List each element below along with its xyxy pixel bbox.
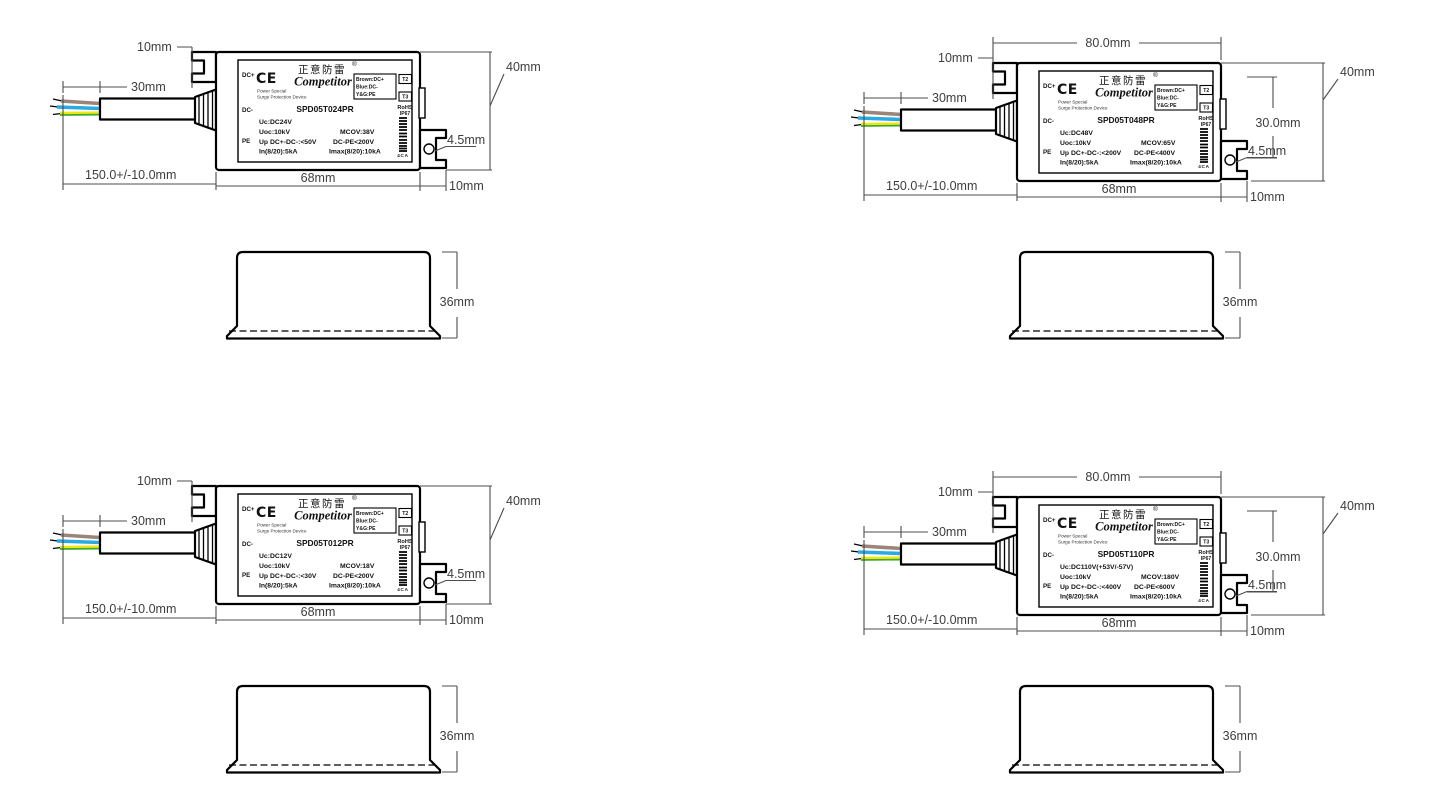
mounting-hole bbox=[424, 578, 434, 588]
legend-blue: Blue:DC- bbox=[1157, 96, 1179, 102]
svg-text:T2: T2 bbox=[1203, 522, 1209, 528]
dim-cable-length-label: 150.0+/-10.0mm bbox=[85, 168, 176, 182]
ip-rating: IP67 bbox=[400, 111, 411, 117]
wire-strands bbox=[851, 110, 901, 126]
t3-badge: T3 bbox=[399, 92, 412, 101]
dim-side-height: 36mm bbox=[1223, 686, 1258, 772]
spec-uc: Uc:DC24V bbox=[259, 119, 292, 126]
side-view-body bbox=[227, 252, 440, 339]
legend-brown: Brown:DC+ bbox=[356, 511, 384, 517]
dim-tab-width-label: 10mm bbox=[938, 485, 973, 499]
datasheet-dimension-drawings: DC+ DC- PE CE 正意防雷 ® Competitor Power Sp… bbox=[0, 0, 1450, 800]
front-view: DC+ DC- PE CE 正意防雷 ® Competitor Power Sp… bbox=[50, 486, 446, 604]
unit-spd05t012pr: DC+ DC- PE CE 正意防雷 ® Competitor Power Sp… bbox=[0, 400, 725, 800]
svg-text:T3: T3 bbox=[402, 529, 408, 535]
spec-up: Up DC+-DC-:<50V bbox=[259, 139, 317, 146]
dim-body-width: 68mm 10mm bbox=[1017, 615, 1285, 638]
legend-blue: Blue:DC- bbox=[356, 85, 378, 91]
dim-strip-length-label: 30mm bbox=[932, 91, 967, 105]
dim-body-width: 68mm 10mm bbox=[216, 170, 484, 193]
dim-overall-height-label: 40mm bbox=[1340, 65, 1375, 79]
spec-uc: Uc:DC12V bbox=[259, 553, 292, 560]
dim-hole-pitch-label: 30.0mm bbox=[1255, 116, 1300, 130]
registered-mark-icon: ® bbox=[1153, 505, 1158, 513]
terminal-pe: PE bbox=[1043, 149, 1051, 156]
spec-mcov: MCOV:18V bbox=[340, 563, 375, 570]
tagline-line2: Surge Protection Device bbox=[1058, 106, 1108, 111]
dim-hole-label: 4.5mm bbox=[1248, 144, 1286, 158]
dim-body-width-label: 68mm bbox=[301, 605, 336, 619]
dim-body-width-label: 68mm bbox=[1102, 616, 1137, 630]
mounting-hole bbox=[1225, 155, 1235, 165]
dim-side-height-label: 36mm bbox=[440, 295, 475, 309]
model-number: SPD05T048PR bbox=[1097, 115, 1154, 125]
terminal-dc-minus: DC- bbox=[242, 107, 253, 114]
terminal-pe: PE bbox=[242, 572, 250, 579]
dim-right-tab-label: 10mm bbox=[1250, 190, 1285, 204]
dim-top-width: 80.0mm bbox=[993, 470, 1221, 494]
dim-body-width-label: 68mm bbox=[301, 171, 336, 185]
cable bbox=[100, 99, 196, 120]
t2-badge: T2 bbox=[1200, 86, 1213, 95]
dim-strip-length: 30mm bbox=[63, 80, 166, 94]
spec-uoc: Uoc:10kV bbox=[1060, 140, 1091, 147]
ce-mark-icon: CE bbox=[1057, 82, 1078, 98]
side-view-body bbox=[227, 686, 440, 773]
terminal-dc-minus: DC- bbox=[1043, 552, 1054, 559]
front-view: DC+ DC- PE CE 正意防雷 ® Competitor Power Sp… bbox=[851, 497, 1247, 615]
side-view: 36mm bbox=[1010, 252, 1257, 339]
dim-body-width-label: 68mm bbox=[1102, 182, 1137, 196]
dim-top-width: 80.0mm bbox=[993, 36, 1221, 60]
side-view-body bbox=[1010, 686, 1223, 773]
registered-mark-icon: ® bbox=[352, 60, 357, 68]
dim-hole-label: 4.5mm bbox=[1248, 578, 1286, 592]
spec-imax: Imax(8/20):10kA bbox=[1130, 594, 1182, 601]
dim-right-tab-label: 10mm bbox=[449, 179, 484, 193]
svg-text:T2: T2 bbox=[402, 511, 408, 517]
spec-in: In(8/20):5kA bbox=[259, 583, 298, 590]
mounting-tab-top bbox=[993, 63, 1017, 93]
dim-top-width-label: 80.0mm bbox=[1085, 470, 1130, 484]
unit-spd05t048pr: DC+ DC- PE CE 正意防雷 ® Competitor Power Sp… bbox=[725, 0, 1450, 400]
dim-hole-pitch-label: 30.0mm bbox=[1255, 550, 1300, 564]
dim-strip-length-label: 30mm bbox=[131, 514, 166, 528]
wire-color-legend: Brown:DC+ Blue:DC- Y&G:PE bbox=[354, 508, 396, 533]
dim-strip-length: 30mm bbox=[864, 525, 967, 539]
dim-strip-length-label: 30mm bbox=[932, 525, 967, 539]
spec-uoc: Uoc:10kV bbox=[259, 563, 290, 570]
side-rail bbox=[1220, 533, 1226, 563]
legend-brown: Brown:DC+ bbox=[356, 77, 384, 83]
dim-overall-height: 40mm bbox=[420, 52, 541, 170]
model-number: SPD05T110PR bbox=[1098, 549, 1155, 559]
dim-cable-length-label: 150.0+/-10.0mm bbox=[886, 613, 977, 627]
ce-mark-icon: CE bbox=[256, 71, 277, 87]
model-number: SPD05T012PR bbox=[296, 538, 353, 548]
side-rail bbox=[1220, 99, 1226, 129]
dim-cable-length-label: 150.0+/-10.0mm bbox=[85, 602, 176, 616]
spec-in: In(8/20):5kA bbox=[259, 149, 298, 156]
legend-blue: Blue:DC- bbox=[356, 519, 378, 525]
barcode-caption: 4CA bbox=[1198, 598, 1210, 603]
barcode-caption: 4CA bbox=[1198, 164, 1210, 169]
legend-yg: Y&G:PE bbox=[356, 526, 376, 532]
terminal-dc-plus: DC+ bbox=[242, 72, 255, 79]
cable-gland bbox=[996, 535, 1017, 576]
spec-dcpe: DC-PE<200V bbox=[333, 573, 374, 580]
legend-yg: Y&G:PE bbox=[1157, 103, 1177, 109]
spec-imax: Imax(8/20):10kA bbox=[1130, 160, 1182, 167]
spec-up: Up DC+-DC-:<30V bbox=[259, 573, 317, 580]
legend-brown: Brown:DC+ bbox=[1157, 522, 1185, 528]
unit-spd05t110pr: DC+ DC- PE CE 正意防雷 ® Competitor Power Sp… bbox=[725, 400, 1450, 800]
legend-blue: Blue:DC- bbox=[1157, 530, 1179, 536]
tagline-line1: Power Special bbox=[257, 523, 286, 528]
mounting-tab-right bbox=[420, 564, 446, 602]
dim-side-height: 36mm bbox=[1223, 252, 1258, 338]
front-view: DC+ DC- PE CE 正意防雷 ® Competitor Power Sp… bbox=[50, 52, 446, 170]
brand-name: Competitor bbox=[1095, 520, 1153, 534]
dim-strip-length-label: 30mm bbox=[131, 80, 166, 94]
dim-hole-label: 4.5mm bbox=[447, 133, 485, 147]
tagline-line1: Power Special bbox=[1058, 534, 1087, 539]
spec-uc: Uc:DC48V bbox=[1060, 130, 1093, 137]
cable-gland bbox=[996, 101, 1017, 142]
dim-overall-height: 40mm bbox=[420, 486, 541, 604]
legend-yg: Y&G:PE bbox=[1157, 537, 1177, 543]
tagline-line2: Surge Protection Device bbox=[1058, 540, 1108, 545]
side-view: 36mm bbox=[227, 686, 474, 773]
mounting-hole bbox=[424, 144, 434, 154]
ce-mark-icon: CE bbox=[1057, 516, 1078, 532]
dim-top-width-label: 80.0mm bbox=[1085, 36, 1130, 50]
dim-tab-width-label: 10mm bbox=[938, 51, 973, 65]
spec-dcpe: DC-PE<600V bbox=[1134, 584, 1175, 591]
brown-wire bbox=[61, 535, 100, 538]
dim-side-height-label: 36mm bbox=[1223, 295, 1258, 309]
side-view-body bbox=[1010, 252, 1223, 339]
t2-badge: T2 bbox=[399, 75, 412, 84]
side-view: 36mm bbox=[227, 252, 474, 339]
terminal-pe: PE bbox=[1043, 583, 1051, 590]
mounting-tab-right bbox=[420, 130, 446, 168]
spec-imax: Imax(8/20):10kA bbox=[329, 149, 381, 156]
tagline-line2: Surge Protection Device bbox=[257, 529, 307, 534]
dim-side-height-label: 36mm bbox=[1223, 729, 1258, 743]
spec-mcov: MCOV:180V bbox=[1141, 574, 1180, 581]
spec-mcov: MCOV:38V bbox=[340, 129, 375, 136]
svg-text:T2: T2 bbox=[402, 77, 408, 83]
ce-mark-icon: CE bbox=[256, 505, 277, 521]
t2-badge: T2 bbox=[399, 509, 412, 518]
tagline-line1: Power Special bbox=[1058, 100, 1087, 105]
terminal-dc-minus: DC- bbox=[1043, 118, 1054, 125]
spd-technical-drawing: DC+ DC- PE CE 正意防雷 ® Competitor Power Sp… bbox=[725, 0, 1450, 400]
terminal-dc-plus: DC+ bbox=[1043, 517, 1056, 524]
spec-dcpe: DC-PE<400V bbox=[1134, 150, 1175, 157]
mounting-tab-top bbox=[993, 497, 1017, 527]
spec-imax: Imax(8/20):10kA bbox=[329, 583, 381, 590]
brown-wire bbox=[61, 101, 100, 104]
spec-uoc: Uoc:10kV bbox=[1060, 574, 1091, 581]
registered-mark-icon: ® bbox=[352, 494, 357, 502]
spec-up: Up DC+-DC-:<200V bbox=[1060, 150, 1122, 157]
wire-color-legend: Brown:DC+ Blue:DC- Y&G:PE bbox=[1155, 85, 1197, 110]
model-number: SPD05T024PR bbox=[296, 104, 353, 114]
spd-technical-drawing: DC+ DC- PE CE 正意防雷 ® Competitor Power Sp… bbox=[725, 434, 1450, 800]
spec-uoc: Uoc:10kV bbox=[259, 129, 290, 136]
dim-tab-width-label: 10mm bbox=[137, 474, 172, 488]
dim-body-width: 68mm 10mm bbox=[216, 604, 484, 627]
ip-rating: IP67 bbox=[1201, 122, 1212, 128]
dim-cable-length-label: 150.0+/-10.0mm bbox=[886, 179, 977, 193]
dim-hole-label: 4.5mm bbox=[447, 567, 485, 581]
barcode-caption: 4CA bbox=[397, 587, 409, 592]
tagline-line1: Power Special bbox=[257, 89, 286, 94]
spec-uc: Uc:DC110V(+53V/-57V) bbox=[1060, 564, 1133, 571]
spec-dcpe: DC-PE<200V bbox=[333, 139, 374, 146]
side-rail bbox=[419, 522, 425, 552]
cable bbox=[100, 533, 196, 554]
legend-yg: Y&G:PE bbox=[356, 92, 376, 98]
front-view: DC+ DC- PE CE 正意防雷 ® Competitor Power Sp… bbox=[851, 63, 1247, 181]
t3-badge: T3 bbox=[1200, 103, 1213, 112]
wire-color-legend: Brown:DC+ Blue:DC- Y&G:PE bbox=[354, 74, 396, 99]
mounting-tab-top bbox=[192, 52, 216, 82]
t3-badge: T3 bbox=[399, 526, 412, 535]
dim-overall-height-label: 40mm bbox=[1340, 499, 1375, 513]
wire-strands bbox=[50, 533, 100, 549]
dim-body-width: 68mm 10mm bbox=[1017, 181, 1285, 204]
wire-strands bbox=[851, 544, 901, 560]
t2-badge: T2 bbox=[1200, 520, 1213, 529]
brown-wire bbox=[862, 112, 901, 115]
mounting-tab-right bbox=[1221, 141, 1247, 179]
cable-gland bbox=[195, 524, 216, 565]
mounting-tab-top bbox=[192, 486, 216, 516]
legend-brown: Brown:DC+ bbox=[1157, 88, 1185, 94]
t3-badge: T3 bbox=[1200, 537, 1213, 546]
cable bbox=[901, 110, 997, 131]
spd-technical-drawing: DC+ DC- PE CE 正意防雷 ® Competitor Power Sp… bbox=[0, 434, 725, 800]
dim-overall-height-label: 40mm bbox=[506, 60, 541, 74]
cable-gland bbox=[195, 90, 216, 131]
ip-rating: IP67 bbox=[400, 545, 411, 551]
dim-strip-length: 30mm bbox=[864, 91, 967, 105]
dim-right-tab-label: 10mm bbox=[1250, 624, 1285, 638]
svg-text:T2: T2 bbox=[1203, 88, 1209, 94]
brand-name: Competitor bbox=[1095, 86, 1153, 100]
spec-in: In(8/20):5kA bbox=[1060, 160, 1099, 167]
spec-in: In(8/20):5kA bbox=[1060, 594, 1099, 601]
dim-side-height: 36mm bbox=[440, 686, 475, 772]
wire-strands bbox=[50, 99, 100, 115]
dim-overall-height-label: 40mm bbox=[506, 494, 541, 508]
barcode-caption: 4CA bbox=[397, 153, 409, 158]
terminal-dc-plus: DC+ bbox=[242, 506, 255, 513]
unit-spd05t024pr: DC+ DC- PE CE 正意防雷 ® Competitor Power Sp… bbox=[0, 0, 725, 400]
brand-name: Competitor bbox=[294, 75, 352, 89]
mounting-tab-right bbox=[1221, 575, 1247, 613]
brown-wire bbox=[862, 546, 901, 549]
ip-rating: IP67 bbox=[1201, 556, 1212, 562]
tagline-line2: Surge Protection Device bbox=[257, 95, 307, 100]
side-view: 36mm bbox=[1010, 686, 1257, 773]
dim-right-tab-label: 10mm bbox=[449, 613, 484, 627]
mounting-hole bbox=[1225, 589, 1235, 599]
brand-name: Competitor bbox=[294, 509, 352, 523]
spd-technical-drawing: DC+ DC- PE CE 正意防雷 ® Competitor Power Sp… bbox=[0, 0, 725, 400]
side-rail bbox=[419, 88, 425, 118]
svg-text:T3: T3 bbox=[402, 95, 408, 101]
spec-mcov: MCOV:65V bbox=[1141, 140, 1176, 147]
registered-mark-icon: ® bbox=[1153, 71, 1158, 79]
wire-color-legend: Brown:DC+ Blue:DC- Y&G:PE bbox=[1155, 519, 1197, 544]
terminal-dc-plus: DC+ bbox=[1043, 83, 1056, 90]
spec-up: Up DC+-DC-:<400V bbox=[1060, 584, 1122, 591]
dim-side-height: 36mm bbox=[440, 252, 475, 338]
svg-text:T3: T3 bbox=[1203, 106, 1209, 112]
dim-strip-length: 30mm bbox=[63, 514, 166, 528]
dim-tab-width-label: 10mm bbox=[137, 40, 172, 54]
terminal-pe: PE bbox=[242, 138, 250, 145]
dim-side-height-label: 36mm bbox=[440, 729, 475, 743]
cable bbox=[901, 544, 997, 565]
svg-text:T3: T3 bbox=[1203, 540, 1209, 546]
terminal-dc-minus: DC- bbox=[242, 541, 253, 548]
